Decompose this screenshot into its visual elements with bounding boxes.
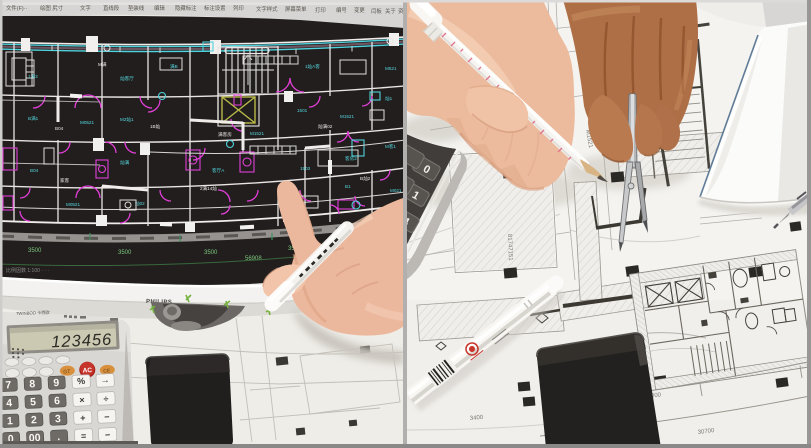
svg-text:7: 7 xyxy=(5,379,12,391)
svg-text:直线段: 直线段 xyxy=(103,4,120,12)
svg-text:3500: 3500 xyxy=(118,250,132,256)
svg-text:AC: AC xyxy=(82,367,92,374)
svg-text:1满3: 1满3 xyxy=(28,73,38,80)
svg-text:5: 5 xyxy=(30,396,37,408)
svg-text:客房2: 客房2 xyxy=(345,155,357,162)
svg-text:6: 6 xyxy=(54,395,61,407)
svg-text:M1521: M1521 xyxy=(340,114,354,119)
svg-text:−: − xyxy=(104,412,110,422)
svg-text:÷: ÷ xyxy=(103,394,108,404)
svg-text:M2灿1: M2灿1 xyxy=(120,116,134,123)
svg-text:M0521: M0521 xyxy=(66,202,80,207)
svg-text:比例因数 1:100 · · ·: 比例因数 1:100 · · · xyxy=(6,267,49,274)
svg-text:满B: 满B xyxy=(170,63,178,70)
svg-text:文字样式: 文字样式 xyxy=(256,5,278,13)
svg-text:M021: M021 xyxy=(390,188,402,193)
svg-text:=: = xyxy=(81,431,87,441)
svg-text:灿满: 灿满 xyxy=(120,159,130,166)
svg-text:闫板: 闫板 xyxy=(371,7,382,15)
svg-text:变更: 变更 xyxy=(354,6,365,14)
svg-text:4: 4 xyxy=(6,397,13,409)
svg-text:3: 3 xyxy=(55,413,62,425)
svg-text:编辑: 编辑 xyxy=(154,4,165,12)
svg-text:GT: GT xyxy=(63,369,70,375)
svg-text:1501: 1501 xyxy=(297,108,308,113)
svg-text:B04: B04 xyxy=(55,126,64,131)
svg-text:1灿A客: 1灿A客 xyxy=(305,63,320,70)
svg-text:2满14灿: 2满14灿 xyxy=(200,185,217,192)
svg-text:→: → xyxy=(100,375,109,385)
svg-text:9: 9 xyxy=(53,377,60,389)
svg-text:1503: 1503 xyxy=(300,166,311,171)
svg-text:123456: 123456 xyxy=(51,331,113,352)
svg-text:1: 1 xyxy=(7,415,14,427)
svg-text:满客房: 满客房 xyxy=(218,131,232,138)
svg-text:B04: B04 xyxy=(30,168,39,173)
svg-text:B1: B1 xyxy=(345,184,351,189)
svg-text:8: 8 xyxy=(29,378,36,390)
svg-text:灿02: 灿02 xyxy=(135,200,145,207)
svg-text:绘图 尻寸: 绘图 尻寸 xyxy=(40,4,64,12)
svg-text:×: × xyxy=(79,395,85,405)
svg-text:M521: M521 xyxy=(385,66,397,71)
svg-text:关于: 关于 xyxy=(385,7,396,15)
svg-text:3500: 3500 xyxy=(28,248,42,254)
svg-text:标注设置: 标注设置 xyxy=(204,4,226,12)
svg-text:隐藏标注: 隐藏标注 xyxy=(175,4,197,12)
svg-text:编号: 编号 xyxy=(336,6,347,14)
svg-text:3400: 3400 xyxy=(470,415,484,422)
svg-text:屏幕菜单: 屏幕菜单 xyxy=(285,5,307,13)
svg-text:%: % xyxy=(77,376,85,386)
svg-text:81747151: 81747151 xyxy=(506,234,513,262)
svg-text:文字: 文字 xyxy=(80,4,91,12)
svg-text:灿客厅: 灿客厅 xyxy=(120,75,134,82)
svg-text:列印: 列印 xyxy=(233,4,244,12)
svg-text:M客1: M客1 xyxy=(385,143,396,150)
svg-text:+: + xyxy=(80,413,86,423)
svg-text:B灿2: B灿2 xyxy=(360,175,371,182)
svg-text:3500: 3500 xyxy=(204,250,218,256)
svg-text:客厅A: 客厅A xyxy=(212,167,225,174)
svg-text:2: 2 xyxy=(31,414,38,426)
svg-text:灿1: 灿1 xyxy=(385,95,393,102)
svg-text:1B灿: 1B灿 xyxy=(150,123,161,130)
svg-text:M1521: M1521 xyxy=(250,131,264,136)
svg-text:打印: 打印 xyxy=(315,6,326,14)
svg-text:M0521: M0521 xyxy=(80,120,94,125)
svg-text:−: − xyxy=(105,430,111,440)
svg-text:家客: 家客 xyxy=(60,177,70,184)
svg-text:B满1: B满1 xyxy=(28,115,39,122)
svg-text:灿满02: 灿满02 xyxy=(318,123,333,130)
svg-text:垫装线: 垫装线 xyxy=(128,4,145,12)
svg-text:M满: M满 xyxy=(98,61,107,68)
svg-text:文件(F)··: 文件(F)·· xyxy=(6,4,27,12)
